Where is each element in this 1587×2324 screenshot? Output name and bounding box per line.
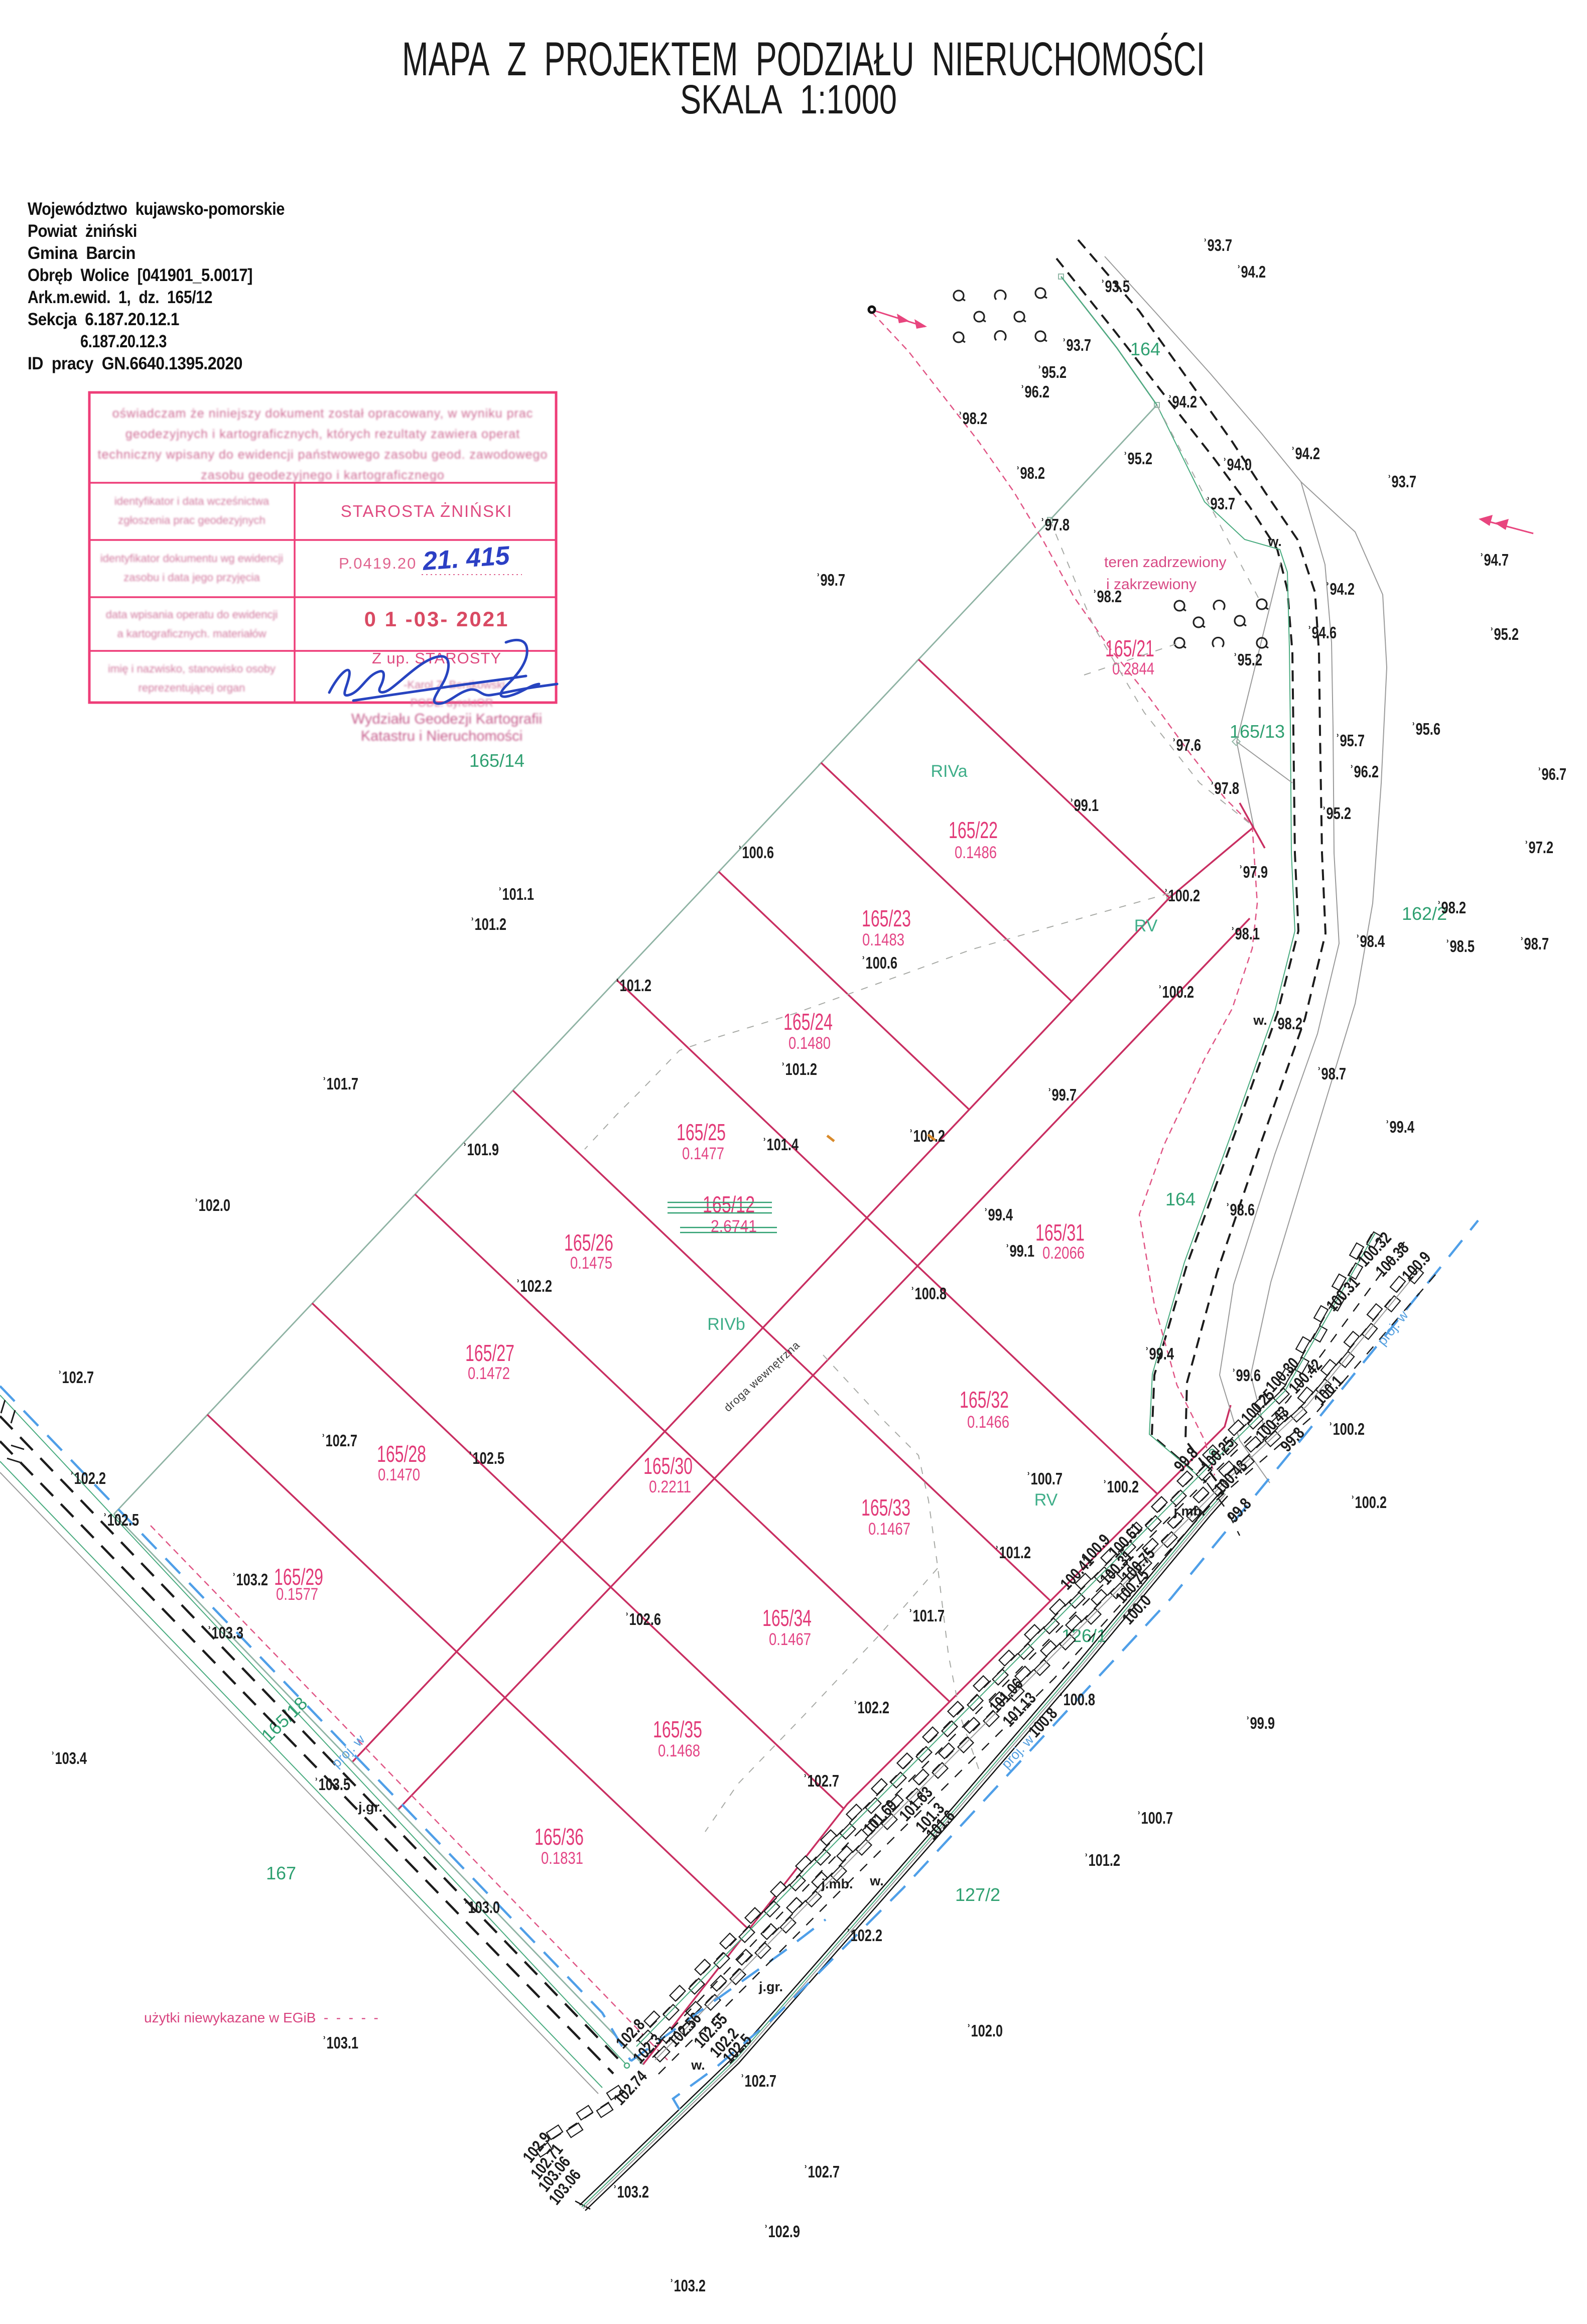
svg-text:ʾ97.2: ʾ97.2 <box>1524 838 1553 857</box>
svg-text:ʾ100.8: ʾ100.8 <box>910 1284 947 1303</box>
svg-text:165/26: 165/26 <box>564 1229 613 1256</box>
svg-text:ʾ101.2: ʾ101.2 <box>781 1060 817 1078</box>
svg-text:zgłoszenia prac geodezyjnych: zgłoszenia prac geodezyjnych <box>118 514 266 526</box>
svg-text:techniczny wpisany do ewidencj: techniczny wpisany do ewidencji państwow… <box>98 448 548 462</box>
svg-text:Obręb Wolice [041901_5.0017]: Obręb Wolice [041901_5.0017] <box>28 265 252 285</box>
svg-text:ʾ98.1: ʾ98.1 <box>1231 924 1260 943</box>
svg-text:ʾ101.7: ʾ101.7 <box>908 1606 945 1625</box>
svg-text:ʾ94.2: ʾ94.2 <box>1237 262 1266 281</box>
svg-text:RV: RV <box>1134 916 1158 935</box>
svg-text:167: 167 <box>266 1863 296 1883</box>
svg-text:0.1470: 0.1470 <box>378 1465 420 1484</box>
svg-text:zasobu geodezyjnego i kartogra: zasobu geodezyjnego i kartograficznego <box>201 468 445 482</box>
svg-text:ʾ101.1: ʾ101.1 <box>498 885 534 903</box>
svg-text:ʾ101.2: ʾ101.2 <box>615 976 651 995</box>
svg-text:165/23: 165/23 <box>862 905 911 931</box>
svg-text:ʾ99.7: ʾ99.7 <box>816 571 845 589</box>
svg-text:165/33: 165/33 <box>861 1494 910 1521</box>
svg-text:ʾ94.2: ʾ94.2 <box>1291 444 1320 463</box>
svg-text:j.mb.: j.mb. <box>821 1876 853 1891</box>
svg-text:ʾ94.0: ʾ94.0 <box>1223 455 1252 474</box>
svg-text:ʾ97.6: ʾ97.6 <box>1172 736 1201 754</box>
svg-text:0.2066: 0.2066 <box>1042 1244 1085 1263</box>
svg-text:teren zadrzewiony: teren zadrzewiony <box>1104 554 1226 571</box>
svg-text:0.1480: 0.1480 <box>788 1034 831 1053</box>
svg-text:165/34: 165/34 <box>762 1605 812 1631</box>
svg-text:0.1467: 0.1467 <box>868 1520 910 1539</box>
svg-text:ʾ95.2: ʾ95.2 <box>1233 650 1262 669</box>
svg-text:ʾ102.7: ʾ102.7 <box>321 1431 357 1450</box>
svg-text:identyfikator dokumentu wg ewi: identyfikator dokumentu wg ewidencji <box>100 552 283 565</box>
svg-text:ʾ93.5: ʾ93.5 <box>1101 277 1130 296</box>
svg-text:164: 164 <box>1130 339 1160 359</box>
svg-text:ʾ102.0: ʾ102.0 <box>967 2021 1003 2040</box>
svg-text:w.: w. <box>1253 1013 1267 1028</box>
svg-text:ʾ98.2: ʾ98.2 <box>1437 898 1466 917</box>
svg-text:ʾ103.2: ʾ103.2 <box>613 2182 649 2201</box>
svg-text:ʾ97.8: ʾ97.8 <box>1040 515 1070 534</box>
svg-text:ʾ102.2: ʾ102.2 <box>70 1469 106 1487</box>
svg-text:ʾ102.0: ʾ102.0 <box>194 1196 230 1214</box>
svg-text:165/30: 165/30 <box>643 1453 693 1479</box>
svg-text:165/14: 165/14 <box>469 750 524 771</box>
svg-text:P.0419.20: P.0419.20 <box>339 555 417 572</box>
svg-text:RIVa: RIVa <box>931 762 967 781</box>
svg-text:0.1477: 0.1477 <box>682 1144 724 1163</box>
svg-text:127/2: 127/2 <box>955 1884 1000 1905</box>
svg-text:ʾ102.7: ʾ102.7 <box>803 1771 839 1790</box>
svg-text:w.: w. <box>1267 534 1282 549</box>
svg-text:ʾ103.3: ʾ103.3 <box>207 1623 243 1642</box>
svg-text:ʾ100.7: ʾ100.7 <box>1026 1469 1063 1488</box>
svg-text:ʾ98.6: ʾ98.6 <box>1226 1200 1255 1219</box>
svg-text:ʾ102.7: ʾ102.7 <box>58 1368 94 1387</box>
svg-text:ʾ100.6: ʾ100.6 <box>738 843 774 862</box>
svg-text:0.1468: 0.1468 <box>658 1741 700 1760</box>
svg-text:ʾ95.2: ʾ95.2 <box>1037 363 1067 381</box>
svg-text:zasobu i data jego przyjęcia: zasobu i data jego przyjęcia <box>123 571 260 584</box>
svg-text:165/31: 165/31 <box>1035 1219 1085 1246</box>
svg-text:STAROSTA ŻNIŃSKI: STAROSTA ŻNIŃSKI <box>341 502 513 520</box>
svg-text:ʾ103.2: ʾ103.2 <box>670 2276 706 2295</box>
svg-text:ʾ102.2: ʾ102.2 <box>846 1926 882 1945</box>
svg-text:ʾ95.2: ʾ95.2 <box>1490 625 1519 643</box>
svg-text:ʾ99.6: ʾ99.6 <box>1232 1366 1261 1385</box>
svg-text:ʾ101.9: ʾ101.9 <box>463 1140 499 1159</box>
svg-text:ʾ95.6: ʾ95.6 <box>1411 720 1440 738</box>
svg-text:ʾ102.2: ʾ102.2 <box>853 1698 889 1717</box>
svg-text:ʾ96.2: ʾ96.2 <box>1020 382 1049 401</box>
svg-text:ʾ101.7: ʾ101.7 <box>322 1074 358 1093</box>
svg-text:ʾ100.2: ʾ100.2 <box>1164 886 1200 905</box>
svg-text:ʾ98.7: ʾ98.7 <box>1317 1064 1346 1083</box>
svg-text:ʾ98.2: ʾ98.2 <box>958 409 987 428</box>
svg-text:ʾ101.2: ʾ101.2 <box>995 1543 1031 1562</box>
svg-text:ʾ98.2: ʾ98.2 <box>1093 587 1122 606</box>
svg-text:SKALA 1:1000: SKALA 1:1000 <box>680 77 897 122</box>
svg-text:21. 415: 21. 415 <box>421 541 511 576</box>
svg-text:ʾ94.6: ʾ94.6 <box>1307 623 1337 642</box>
svg-text:165/25: 165/25 <box>677 1119 726 1145</box>
svg-text:ʾ100.2: ʾ100.2 <box>909 1127 945 1145</box>
svg-text:0 1 -03- 2021: 0 1 -03- 2021 <box>364 607 509 631</box>
svg-text:0.1472: 0.1472 <box>468 1364 510 1383</box>
svg-text:RV: RV <box>1034 1490 1058 1510</box>
svg-text:Województwo kujawsko-pomorski: Województwo kujawsko-pomorskie <box>28 199 285 219</box>
svg-text:ʾ103.5: ʾ103.5 <box>314 1775 350 1794</box>
svg-text:Powiat żniński: Powiat żniński <box>28 221 137 241</box>
svg-text:ʾ102.5: ʾ102.5 <box>468 1449 504 1467</box>
svg-text:ʾ102.5: ʾ102.5 <box>103 1511 139 1529</box>
svg-text:ʾ98.7: ʾ98.7 <box>1520 934 1549 953</box>
svg-text:Katastru i Nieruchomości: Katastru i Nieruchomości <box>361 728 522 744</box>
svg-text:ʾ103.0: ʾ103.0 <box>464 1898 500 1917</box>
svg-text:2.6741: 2.6741 <box>711 1217 757 1236</box>
svg-text:ʾ96.2: ʾ96.2 <box>1350 762 1379 781</box>
svg-text:0.1486: 0.1486 <box>955 843 997 862</box>
svg-text:Wydziału Geodezji Kartografii: Wydziału Geodezji Kartografii <box>351 711 542 727</box>
svg-text:ʾ101.2: ʾ101.2 <box>470 915 506 933</box>
svg-text:ʾ99.4: ʾ99.4 <box>1145 1344 1174 1363</box>
svg-text:oświadczam że niniejszy dokume: oświadczam że niniejszy dokument został … <box>112 406 534 421</box>
svg-text:j.mb.: j.mb. <box>1173 1503 1205 1519</box>
svg-text:ʾ100.6: ʾ100.6 <box>861 953 897 972</box>
svg-text:ʾ98.2: ʾ98.2 <box>1016 464 1045 482</box>
svg-text:165/36: 165/36 <box>535 1824 584 1850</box>
svg-text:ʾ103.2: ʾ103.2 <box>232 1570 268 1589</box>
svg-text:j.gr.: j.gr. <box>358 1800 382 1815</box>
svg-text:ʾ99.9: ʾ99.9 <box>1246 1714 1275 1732</box>
svg-text:165/28: 165/28 <box>377 1441 426 1467</box>
svg-text:0.1483: 0.1483 <box>862 930 904 949</box>
svg-text:ʾ93.7: ʾ93.7 <box>1206 494 1235 513</box>
svg-text:RIVb: RIVb <box>707 1315 745 1334</box>
svg-text:ʾ99.7: ʾ99.7 <box>1047 1085 1077 1104</box>
svg-text:ʾ100.2: ʾ100.2 <box>1103 1477 1139 1496</box>
svg-text:ID pracy GN.6640.1395.2020: ID pracy GN.6640.1395.2020 <box>28 354 242 373</box>
svg-text:ʾ100.7: ʾ100.7 <box>1137 1809 1173 1827</box>
svg-text:165/22: 165/22 <box>949 817 998 843</box>
svg-text:ʾ100.2: ʾ100.2 <box>1351 1493 1387 1512</box>
svg-text:data wpisania operatu do ewide: data wpisania operatu do ewidencji <box>106 608 278 621</box>
svg-text:użytki niewykazane w EGiB: użytki niewykazane w EGiB - - - - - <box>144 2010 378 2025</box>
svg-text:ʾ103.1: ʾ103.1 <box>322 2033 358 2052</box>
svg-text:a kartograficznych. materiałó: a kartograficznych. materiałów <box>117 627 266 640</box>
svg-text:ʾ93.7: ʾ93.7 <box>1203 236 1232 254</box>
svg-text:ʾ95.7: ʾ95.7 <box>1336 731 1365 750</box>
svg-text:ʾ96.7: ʾ96.7 <box>1537 765 1566 783</box>
svg-text:6.187.20.12.3: 6.187.20.12.3 <box>80 332 167 351</box>
svg-text:165/21: 165/21 <box>1105 635 1154 661</box>
svg-text:165/32: 165/32 <box>960 1387 1009 1413</box>
svg-text:Ark.m.ewid. 1, dz. 165/12: Ark.m.ewid. 1, dz. 165/12 <box>28 288 212 307</box>
svg-text:ʾ103.4: ʾ103.4 <box>51 1749 87 1767</box>
svg-text:ʾ94.2: ʾ94.2 <box>1326 580 1355 598</box>
svg-text:w.: w. <box>691 2058 705 2073</box>
svg-text:ʾ101.4: ʾ101.4 <box>762 1135 799 1154</box>
svg-text:reprezentującej organ: reprezentującej organ <box>139 681 245 694</box>
svg-text:ʾ102.2: ʾ102.2 <box>516 1277 552 1295</box>
svg-text:Sekcja 6.187.20.12.1: Sekcja 6.187.20.12.1 <box>28 310 179 329</box>
svg-text:ʾ101.2: ʾ101.2 <box>1084 1851 1120 1869</box>
svg-text:0.1475: 0.1475 <box>570 1254 612 1273</box>
svg-text:ʾ102.9: ʾ102.9 <box>764 2222 800 2241</box>
svg-text:ʾ98.2: ʾ98.2 <box>1273 1014 1302 1033</box>
svg-text:ʾ99.4: ʾ99.4 <box>984 1205 1013 1224</box>
svg-text:ʾ99.4: ʾ99.4 <box>1385 1118 1414 1136</box>
svg-text:ʾ100.8: ʾ100.8 <box>1059 1690 1095 1709</box>
svg-text:ʾ102.6: ʾ102.6 <box>625 1610 661 1628</box>
svg-text:ʾ98.5: ʾ98.5 <box>1445 937 1475 955</box>
svg-text:ʾ97.8: ʾ97.8 <box>1210 779 1239 797</box>
svg-text:ʾ95.2: ʾ95.2 <box>1123 449 1152 468</box>
svg-text:ʾ94.7: ʾ94.7 <box>1480 551 1509 569</box>
svg-text:0.1466: 0.1466 <box>967 1413 1009 1432</box>
svg-text:ʾ100.2: ʾ100.2 <box>1329 1420 1365 1438</box>
svg-text:ʾ102.7: ʾ102.7 <box>804 2162 840 2181</box>
svg-text:0.1831: 0.1831 <box>541 1849 583 1868</box>
svg-text:ʾ100.2: ʾ100.2 <box>1158 983 1194 1001</box>
svg-text:j.gr.: j.gr. <box>758 1979 783 1994</box>
svg-text:geodezyjnych i kartograficznyc: geodezyjnych i kartograficznych, których… <box>125 427 520 441</box>
svg-text:imię i nazwisko, stanowisko os: imię i nazwisko, stanowisko osoby <box>108 662 276 675</box>
svg-text:w.: w. <box>869 1873 884 1888</box>
svg-text:165/35: 165/35 <box>653 1716 702 1742</box>
svg-text:0.1467: 0.1467 <box>769 1630 811 1649</box>
svg-text:ʾ98.4: ʾ98.4 <box>1356 932 1385 950</box>
svg-text:Gmina Barcin: Gmina Barcin <box>28 243 136 263</box>
svg-text:ʾ99.1: ʾ99.1 <box>1005 1242 1034 1260</box>
svg-text:0.2844: 0.2844 <box>1112 659 1154 678</box>
svg-text:ʾ94.2: ʾ94.2 <box>1168 392 1197 411</box>
svg-text:165/24: 165/24 <box>783 1009 833 1035</box>
svg-text:0.2211: 0.2211 <box>649 1477 691 1496</box>
svg-text:identyfikator i data wcześnic: identyfikator i data wcześnictwa <box>114 495 270 507</box>
svg-text:ʾ99.1: ʾ99.1 <box>1070 796 1099 814</box>
svg-text:ʾ93.7: ʾ93.7 <box>1387 472 1416 491</box>
svg-text:164: 164 <box>1165 1189 1196 1209</box>
svg-text:ʾ93.7: ʾ93.7 <box>1062 336 1091 354</box>
svg-text:ʾ102.7: ʾ102.7 <box>740 2072 776 2090</box>
svg-text:ʾ97.9: ʾ97.9 <box>1239 863 1268 881</box>
svg-text:165/27: 165/27 <box>465 1340 514 1366</box>
svg-text:0.1577: 0.1577 <box>276 1585 318 1604</box>
svg-text:ʾ95.2: ʾ95.2 <box>1322 804 1351 823</box>
